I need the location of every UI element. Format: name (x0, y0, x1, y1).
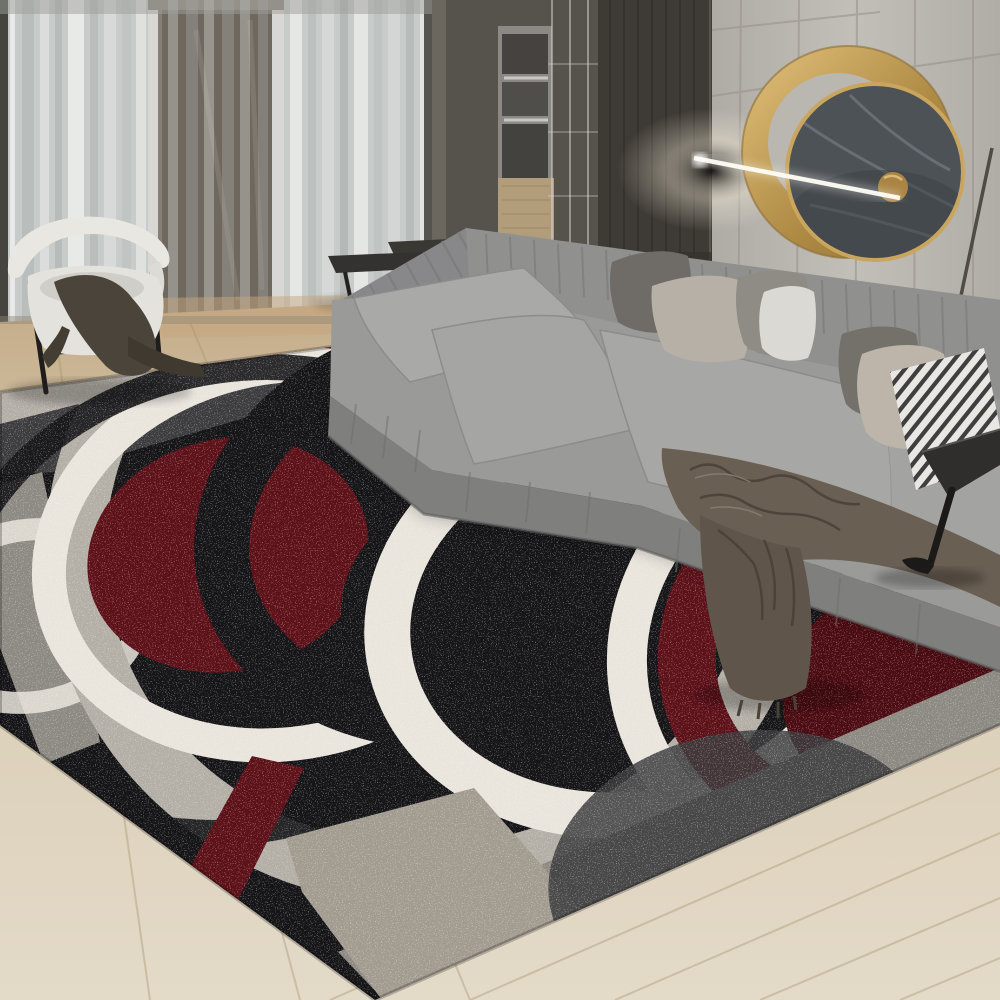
pillow-white (759, 286, 816, 361)
living-room-photo (0, 0, 1000, 1000)
oven-lower (502, 124, 548, 178)
pillow-beige (652, 276, 751, 363)
oven-upper (502, 34, 548, 74)
door-frame-right (272, 0, 284, 322)
curtain-rail-shadow (0, 0, 455, 14)
cabinet-stile (432, 0, 446, 268)
chair-shadow (8, 379, 192, 405)
window-frame-left (0, 0, 8, 324)
oven-mid (502, 82, 548, 116)
scene-canvas (0, 0, 1000, 1000)
wood-cabinet (498, 178, 554, 240)
beam-flare (693, 153, 707, 167)
